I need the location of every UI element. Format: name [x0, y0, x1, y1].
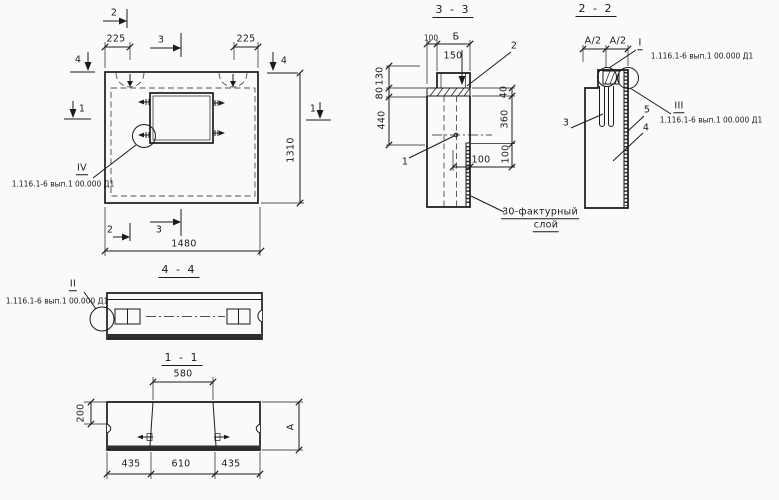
section-3-3-dim-150: 150	[443, 51, 462, 61]
main-section-marker-3-top: 3	[158, 35, 164, 45]
section-2-2-detail-label-I: I	[637, 38, 642, 50]
main-section-marker-3-bottom: 3	[156, 225, 162, 235]
section-3-3-dim-80: 80	[375, 87, 385, 100]
opening-anchor-pins	[138, 99, 225, 138]
section-3-3-dim-100-top: 100	[424, 34, 438, 42]
section-3-3-dim-130: 130	[375, 66, 385, 85]
section-3-3-leader-1: 1	[402, 157, 408, 167]
section-3-3-dim-100-right: 100	[501, 144, 511, 163]
section-3-3-dim-40: 40	[499, 86, 509, 99]
section-1-1-dim-435-left: 435	[121, 459, 140, 469]
main-section-marker-2-top: 2	[111, 8, 117, 18]
section-3-3-note-line1: 30-фактурный	[501, 207, 579, 219]
main-section-marker-1-right: 1	[310, 104, 316, 114]
section-2-2-view	[571, 45, 671, 208]
main-dim-height-label: 1310	[286, 137, 296, 162]
section-2-2-title: 2 - 2	[576, 3, 617, 17]
section-2-2-detail-ref-III: 1.116.1-6 вып.1 00.000 Д1	[660, 116, 763, 124]
section-1-1-dim-610: 610	[171, 459, 190, 469]
section-1-1-dim-580: 580	[173, 369, 192, 379]
section-2-2-detail-ref-I: 1.116.1-6 вып.1 00.000 Д1	[651, 52, 754, 60]
section-1-1-dim-435-right: 435	[221, 459, 240, 469]
main-section-marker-1-left: 1	[79, 104, 85, 114]
main-dim-225-left: 225	[106, 34, 125, 44]
section-3-3-leader-2: 2	[511, 41, 517, 51]
section-2-2-dim-A2-right: А/2	[610, 36, 627, 46]
main-section-marker-4-left: 4	[75, 55, 81, 65]
section-3-3-dim-100-bottom: 100	[471, 155, 490, 165]
main-section-marker-2-bottom: 2	[107, 225, 113, 235]
section-3-3-dim-440: 440	[377, 110, 387, 129]
section-1-1-dim-A: А	[286, 424, 296, 431]
main-dim-width-label: 1480	[171, 239, 196, 249]
section-3-3-dim-360: 360	[500, 109, 510, 128]
section-1-1-view	[84, 377, 303, 479]
detail-circle-II	[90, 307, 114, 331]
drawing-linework	[0, 0, 779, 500]
section-2-2-dim-A2-left: А/2	[585, 36, 602, 46]
main-detail-label-IV: IV	[76, 163, 88, 175]
section-4-4-view	[84, 292, 262, 339]
section-1-1-title: 1 - 1	[162, 352, 203, 366]
section-4-4-detail-label-II: II	[69, 279, 77, 291]
blueprint-sheet: 2 225 3 225 4 4 1 1 1310 IV 1.116.1-6 вы…	[0, 0, 779, 500]
section-3-3-note-line2: слой	[533, 220, 559, 232]
section-2-2-leader-3: 3	[563, 118, 569, 128]
main-dim-225-right: 225	[236, 34, 255, 44]
section-2-2-detail-label-III: III	[673, 101, 684, 113]
main-section-marker-4-right: 4	[281, 56, 287, 66]
section-3-3-dim-B-top: Б	[453, 32, 460, 42]
main-elevation-view	[64, 9, 331, 256]
section-4-4-detail-ref: 1.116.1-6 вып.1 00.000 Д1	[6, 297, 109, 305]
section-4-4-title: 4 - 4	[159, 264, 200, 278]
section-3-3-view	[386, 40, 515, 212]
section-2-2-leader-4: 4	[643, 123, 649, 133]
section-3-3-title: 3 - 3	[433, 4, 474, 18]
section-1-1-dim-200: 200	[76, 403, 86, 422]
section-2-2-leader-5: 5	[644, 105, 650, 115]
main-detail-ref-IV: 1.116.1-6 вып.1 00.000 Д1	[12, 180, 115, 188]
